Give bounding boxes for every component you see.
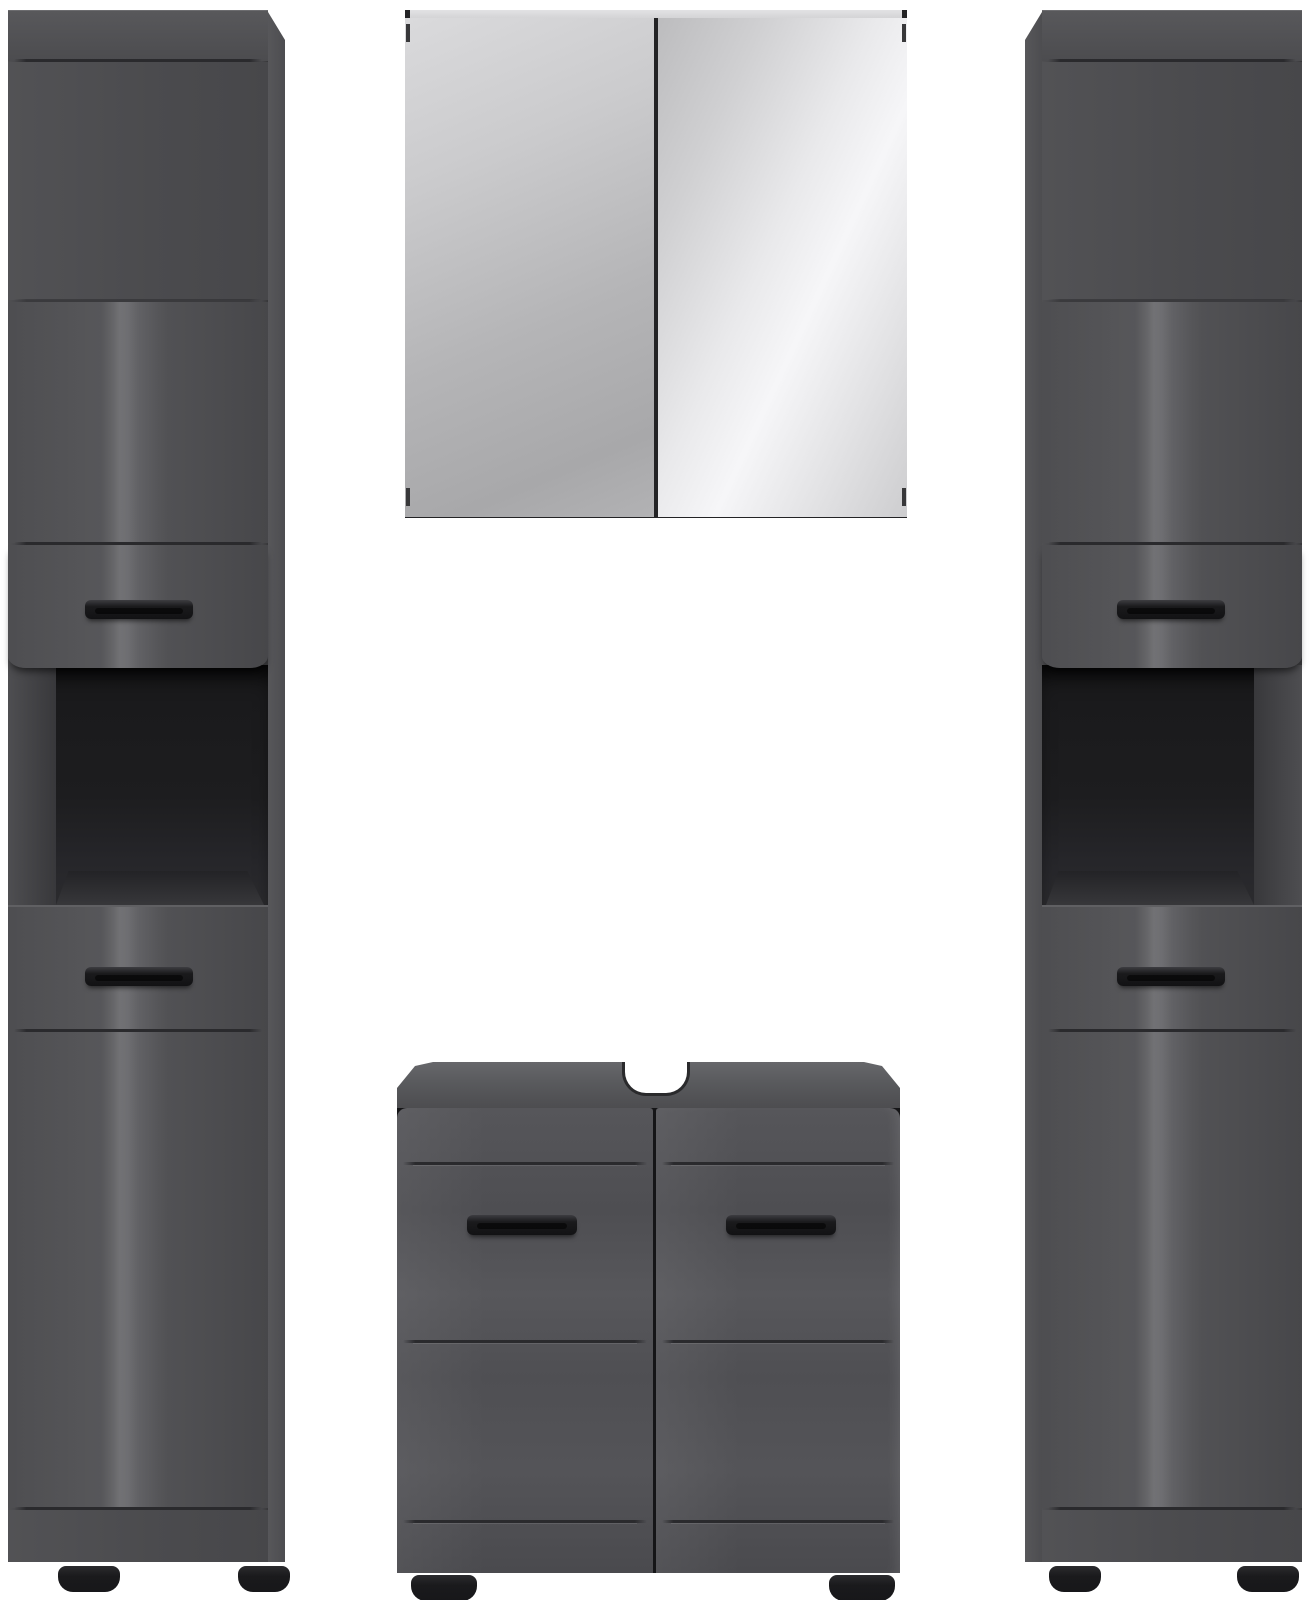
product-image <box>0 0 1310 1600</box>
groove-line <box>403 1162 647 1165</box>
niche-floor <box>56 871 264 905</box>
cabinet-side-panel <box>268 12 285 1562</box>
groove-line <box>403 1520 647 1523</box>
hinge-mark <box>406 488 410 506</box>
top-panel <box>8 10 268 61</box>
tall-cabinet-left <box>8 10 285 1590</box>
mirror-door-right <box>658 18 907 517</box>
groove-line <box>662 1340 894 1343</box>
door-handle <box>1117 600 1225 619</box>
cabinet-side-panel <box>1025 12 1042 1562</box>
washbasin-cabinet <box>397 1062 900 1597</box>
groove-line <box>403 1340 647 1343</box>
siphon-cutout <box>622 1062 690 1096</box>
drawer-front <box>8 905 268 1032</box>
niche-floor <box>1046 871 1254 905</box>
lower-door-panel <box>1042 1032 1302 1508</box>
tall-cabinet-right <box>1025 10 1302 1590</box>
cabinet-foot <box>58 1566 120 1592</box>
cabinet-foot <box>829 1575 895 1600</box>
mirror-door-left <box>405 18 654 517</box>
hinge-mark <box>902 488 906 506</box>
door-handle <box>85 600 193 619</box>
niche-side-wall <box>1254 665 1302 905</box>
bottom-panel <box>8 1510 268 1562</box>
groove-line <box>662 1162 894 1165</box>
door-right <box>656 1108 900 1573</box>
door-handle <box>726 1215 836 1235</box>
cabinet-front <box>8 10 268 1562</box>
drawer-handle <box>85 967 193 986</box>
door-handle <box>467 1215 577 1235</box>
lower-door-panel <box>8 1032 268 1508</box>
cabinet-front <box>1042 10 1302 1562</box>
cabinet-foot <box>1049 1566 1101 1592</box>
upper-door-handle-section <box>8 545 268 668</box>
cabinet-front <box>397 1108 900 1573</box>
upper-door-panel <box>8 62 268 300</box>
niche-side-wall <box>8 665 56 905</box>
bottom-panel <box>1042 1510 1302 1562</box>
drawer-front <box>1042 905 1302 1032</box>
open-shelf-niche <box>8 665 268 905</box>
cabinet-foot <box>1237 1566 1299 1592</box>
open-shelf-niche <box>1042 665 1302 905</box>
upper-door-handle-section <box>1042 545 1302 668</box>
top-panel <box>1042 10 1302 61</box>
upper-door-panel <box>1042 302 1302 543</box>
cabinet-foot <box>238 1566 290 1592</box>
door-left <box>397 1108 653 1573</box>
mirror-cabinet <box>405 10 907 518</box>
groove-line <box>662 1520 894 1523</box>
drawer-handle <box>1117 967 1225 986</box>
mirror-cabinet-top-edge <box>410 10 902 18</box>
upper-door-panel <box>8 302 268 543</box>
hinge-mark <box>406 24 410 42</box>
cabinet-foot <box>411 1575 477 1600</box>
hinge-mark <box>902 24 906 42</box>
upper-door-panel <box>1042 62 1302 300</box>
